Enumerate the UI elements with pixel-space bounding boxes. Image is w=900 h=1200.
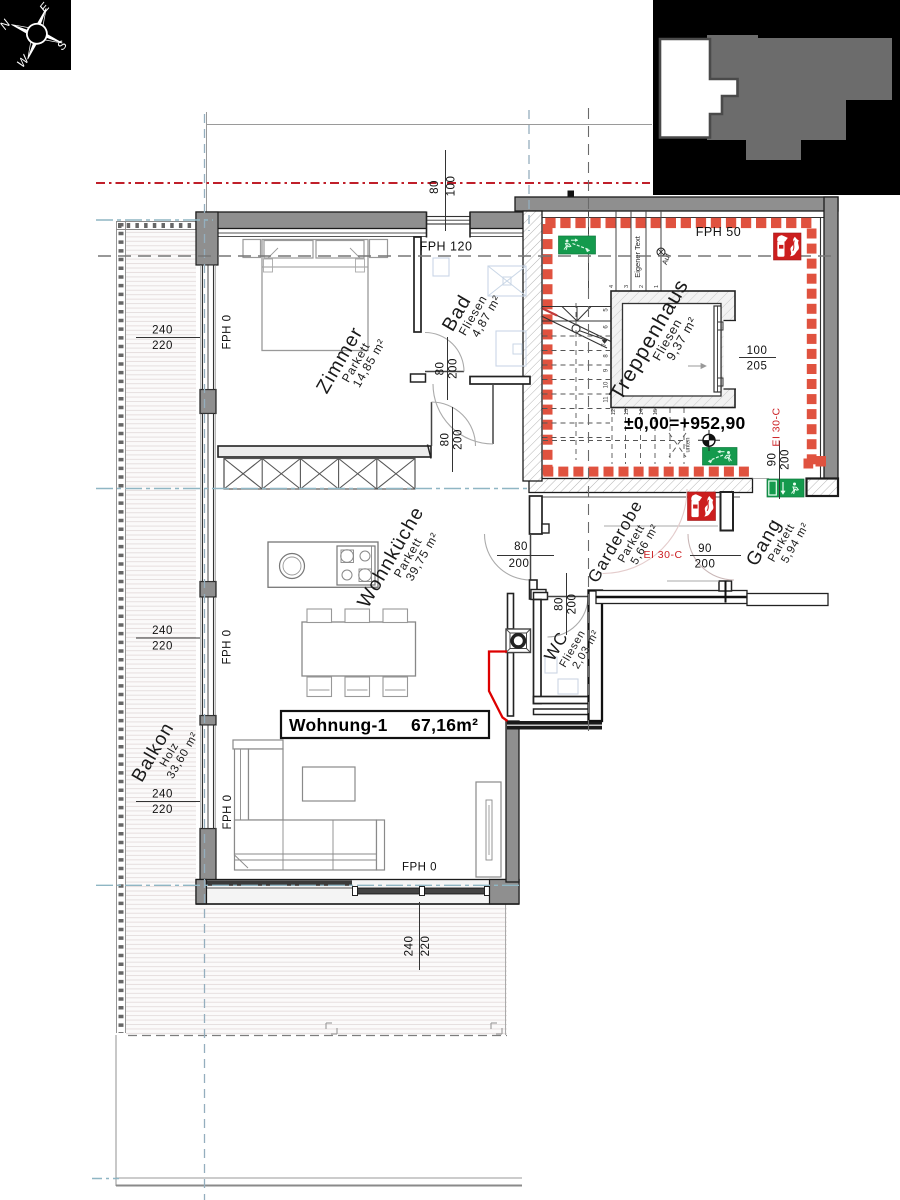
- svg-text:FPH 120: FPH 120: [420, 240, 473, 254]
- svg-text:200: 200: [567, 594, 579, 615]
- svg-text:EI 30-C: EI 30-C: [643, 549, 682, 561]
- svg-text:EI 30-C: EI 30-C: [771, 407, 783, 446]
- svg-text:3: 3: [624, 285, 630, 288]
- svg-text:FPH 0: FPH 0: [222, 794, 234, 829]
- svg-text:220: 220: [152, 340, 173, 352]
- svg-text:220: 220: [420, 936, 432, 957]
- svg-text:240: 240: [404, 936, 416, 957]
- svg-text:100: 100: [446, 176, 458, 197]
- svg-text:240: 240: [152, 789, 173, 801]
- svg-text:220: 220: [152, 804, 173, 816]
- svg-text:1: 1: [654, 285, 660, 288]
- svg-text:90: 90: [698, 543, 712, 555]
- svg-text:4: 4: [609, 285, 615, 288]
- svg-text:unten: unten: [686, 437, 692, 452]
- svg-text:FPH 0: FPH 0: [222, 314, 234, 349]
- svg-text:80: 80: [554, 597, 566, 611]
- svg-text:FPH 50: FPH 50: [696, 225, 741, 239]
- svg-text:±0,00=+952,90: ±0,00=+952,90: [624, 413, 746, 433]
- svg-text:240: 240: [152, 325, 173, 337]
- svg-text:200: 200: [453, 429, 465, 450]
- svg-text:80: 80: [429, 180, 441, 194]
- svg-text:Wohnung-1: Wohnung-1: [289, 715, 388, 735]
- svg-text:200: 200: [780, 449, 792, 470]
- svg-text:67,16m²: 67,16m²: [411, 715, 478, 735]
- svg-text:200: 200: [695, 559, 716, 571]
- svg-text:FPH 0: FPH 0: [402, 862, 437, 874]
- svg-text:12: 12: [611, 409, 617, 415]
- svg-text:FPH 0: FPH 0: [222, 629, 234, 664]
- svg-text:200: 200: [448, 358, 460, 379]
- svg-text:11: 11: [604, 396, 610, 403]
- svg-text:200: 200: [509, 558, 530, 570]
- svg-text:100: 100: [747, 345, 768, 357]
- svg-text:240: 240: [152, 625, 173, 637]
- svg-text:80: 80: [514, 541, 528, 553]
- svg-text:220: 220: [152, 641, 173, 653]
- svg-text:205: 205: [747, 361, 768, 373]
- svg-text:80: 80: [440, 433, 452, 447]
- svg-text:80: 80: [435, 362, 447, 376]
- svg-text:2: 2: [639, 285, 645, 288]
- svg-text:90: 90: [767, 453, 779, 467]
